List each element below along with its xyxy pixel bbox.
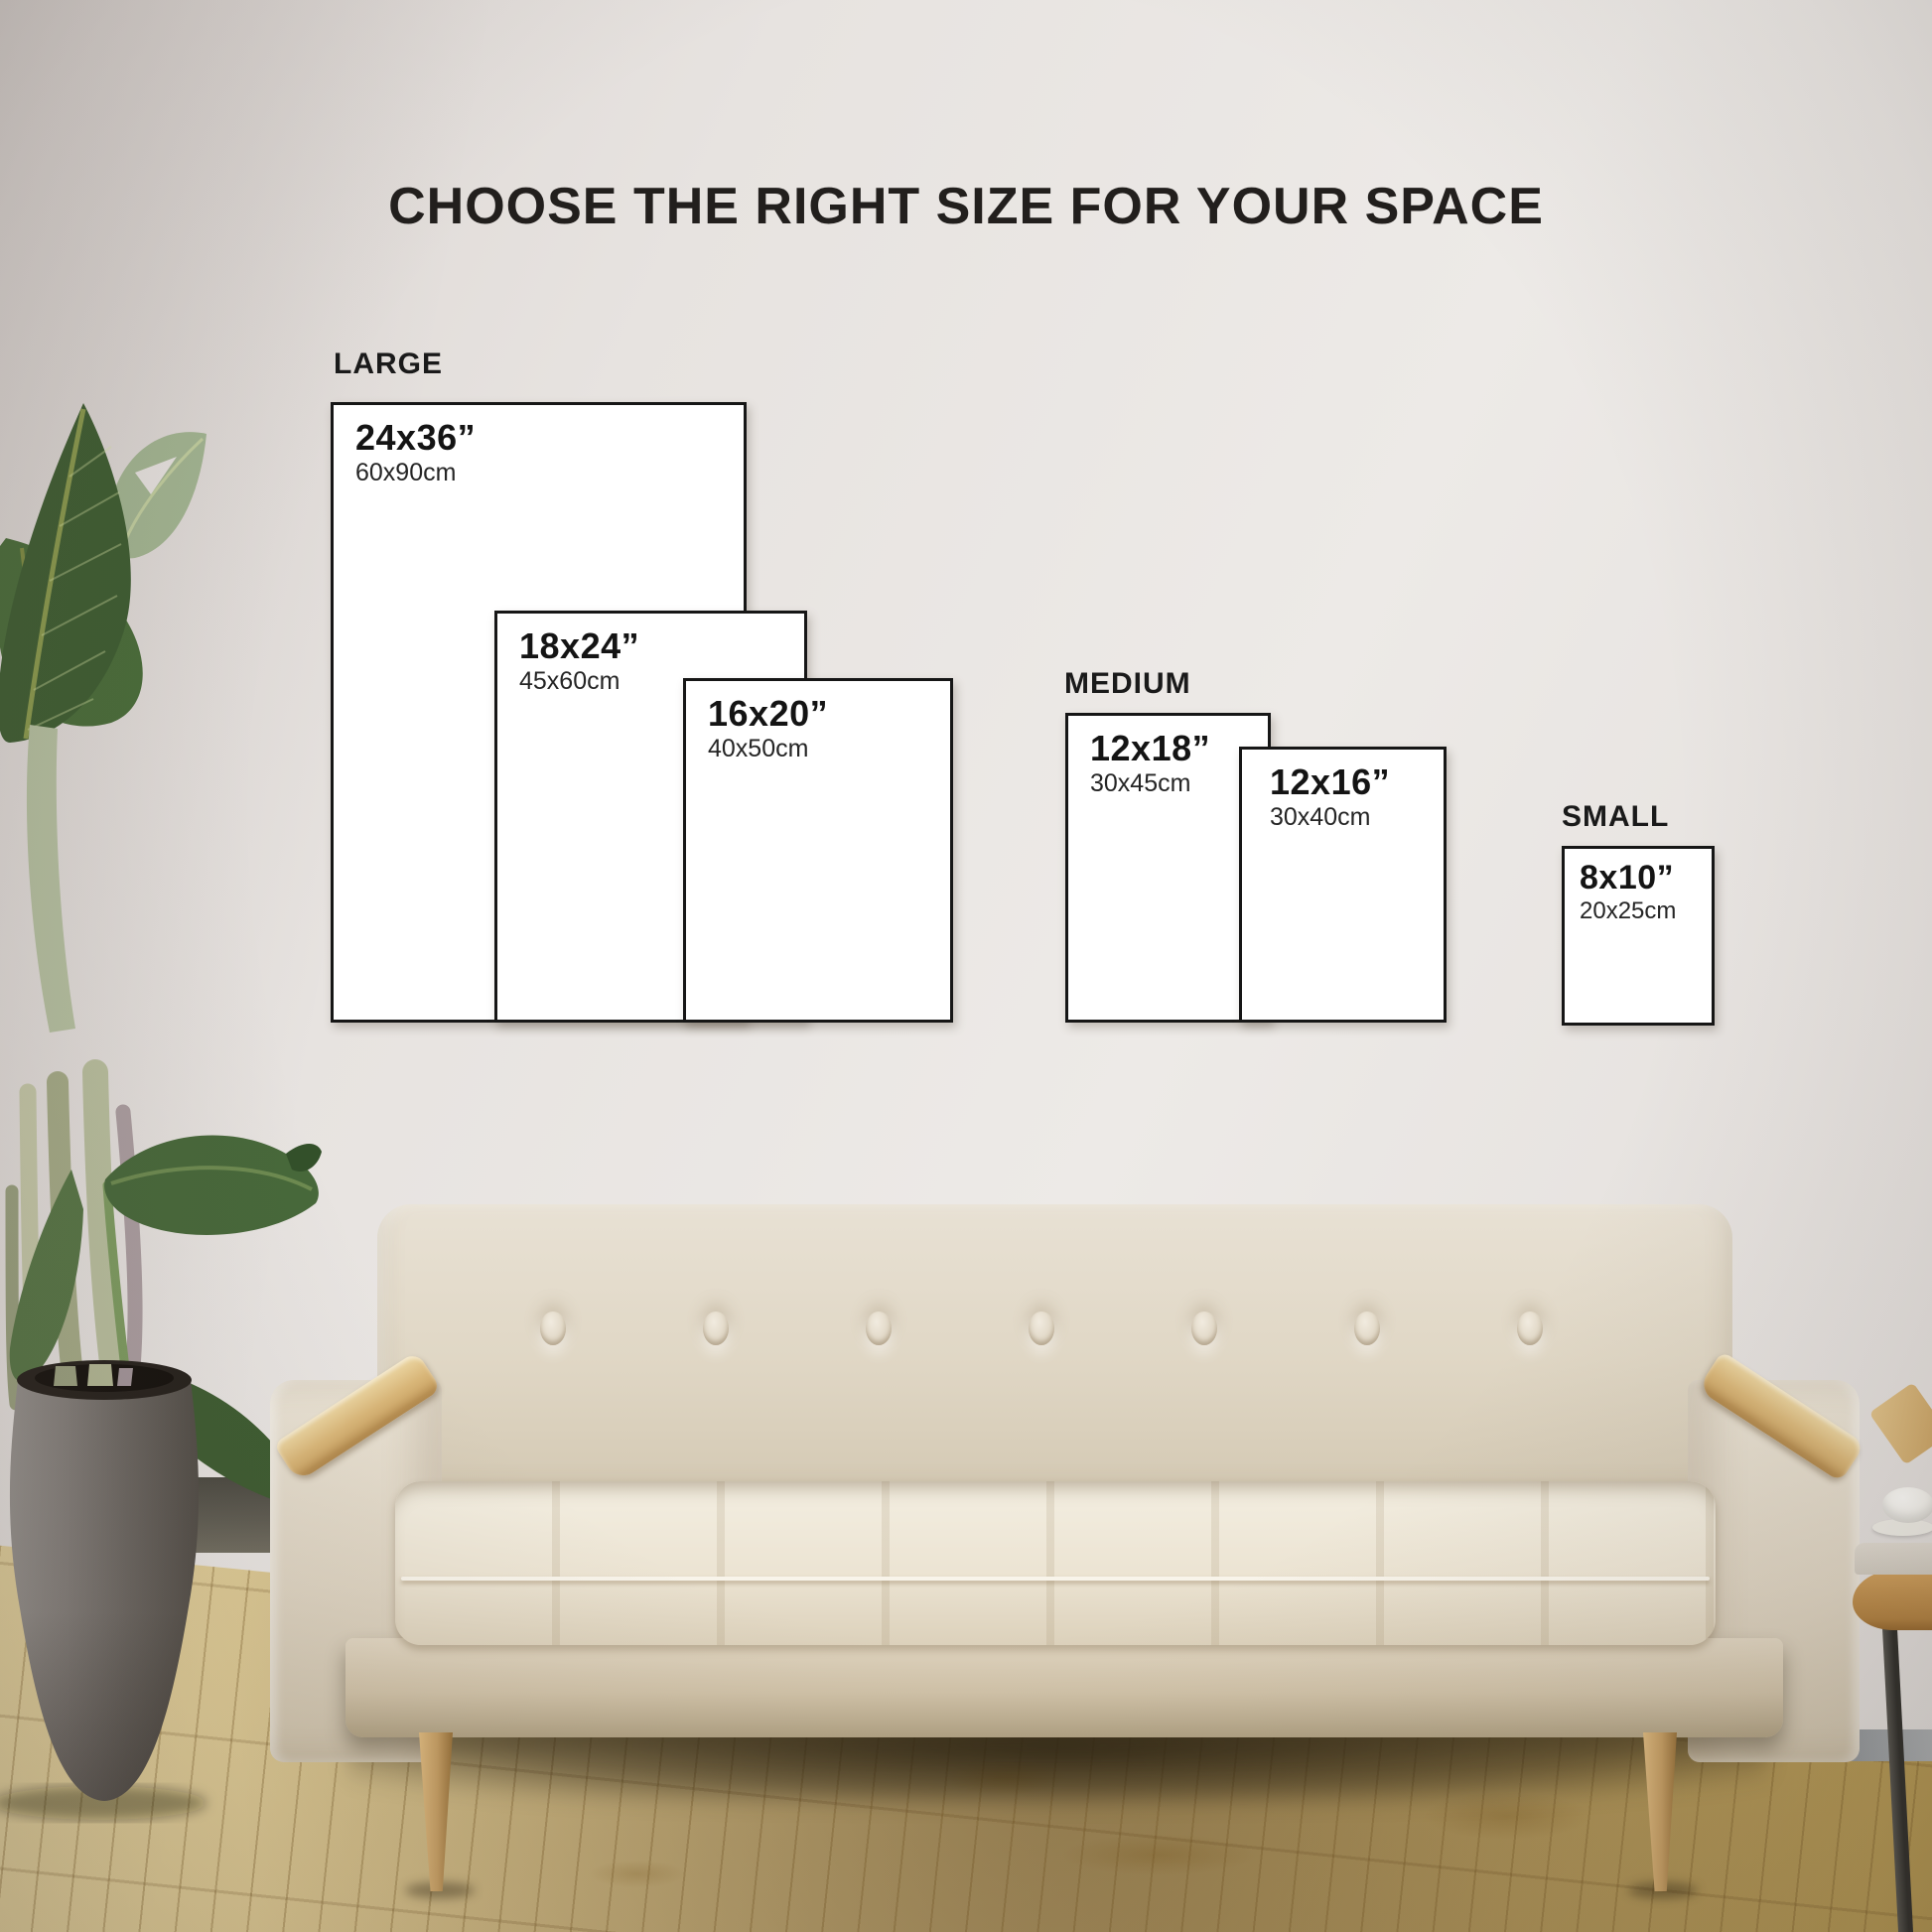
table-top: [1855, 1543, 1932, 1575]
sofa-backrest: [377, 1204, 1732, 1512]
seat-cushion-piping: [401, 1577, 1710, 1581]
size-inches: 8x10”: [1580, 859, 1712, 897]
sofa-button: [1029, 1311, 1054, 1345]
plant-pot: [10, 1360, 199, 1801]
sofa-seat-cushion: [395, 1481, 1716, 1645]
size-box-8x10: 8x10” 20x25cm: [1562, 846, 1715, 1026]
size-cm: 40x50cm: [708, 734, 950, 763]
size-inches: 18x24”: [519, 625, 804, 666]
size-inches: 16x20”: [708, 693, 950, 734]
page-title: CHOOSE THE RIGHT SIZE FOR YOUR SPACE: [0, 177, 1932, 236]
size-cm: 20x25cm: [1580, 897, 1712, 926]
size-cm: 60x90cm: [355, 458, 744, 487]
table-wood-edge: [1853, 1571, 1932, 1630]
group-label-medium: MEDIUM: [1064, 667, 1191, 701]
sofa-button: [540, 1311, 566, 1345]
sofa-button: [866, 1311, 892, 1345]
size-guide-image: CHOOSE THE RIGHT SIZE FOR YOUR SPACE LAR…: [0, 0, 1932, 1932]
size-inches: 12x16”: [1270, 761, 1444, 802]
size-box-16x20: 16x20” 40x50cm: [683, 678, 953, 1023]
sofa-button: [703, 1311, 729, 1345]
group-label-large: LARGE: [334, 347, 443, 381]
sofa-button: [1191, 1311, 1217, 1345]
group-label-small: SMALL: [1562, 800, 1669, 834]
sofa-button: [1354, 1311, 1380, 1345]
size-cm: 30x40cm: [1270, 802, 1444, 832]
white-bowl: [1882, 1487, 1932, 1523]
sofa-button: [1517, 1311, 1543, 1345]
plant-leaves: [0, 403, 322, 1504]
size-box-12x16: 12x16” 30x40cm: [1239, 747, 1447, 1023]
sofa-base: [345, 1638, 1783, 1737]
size-inches: 24x36”: [355, 417, 744, 458]
